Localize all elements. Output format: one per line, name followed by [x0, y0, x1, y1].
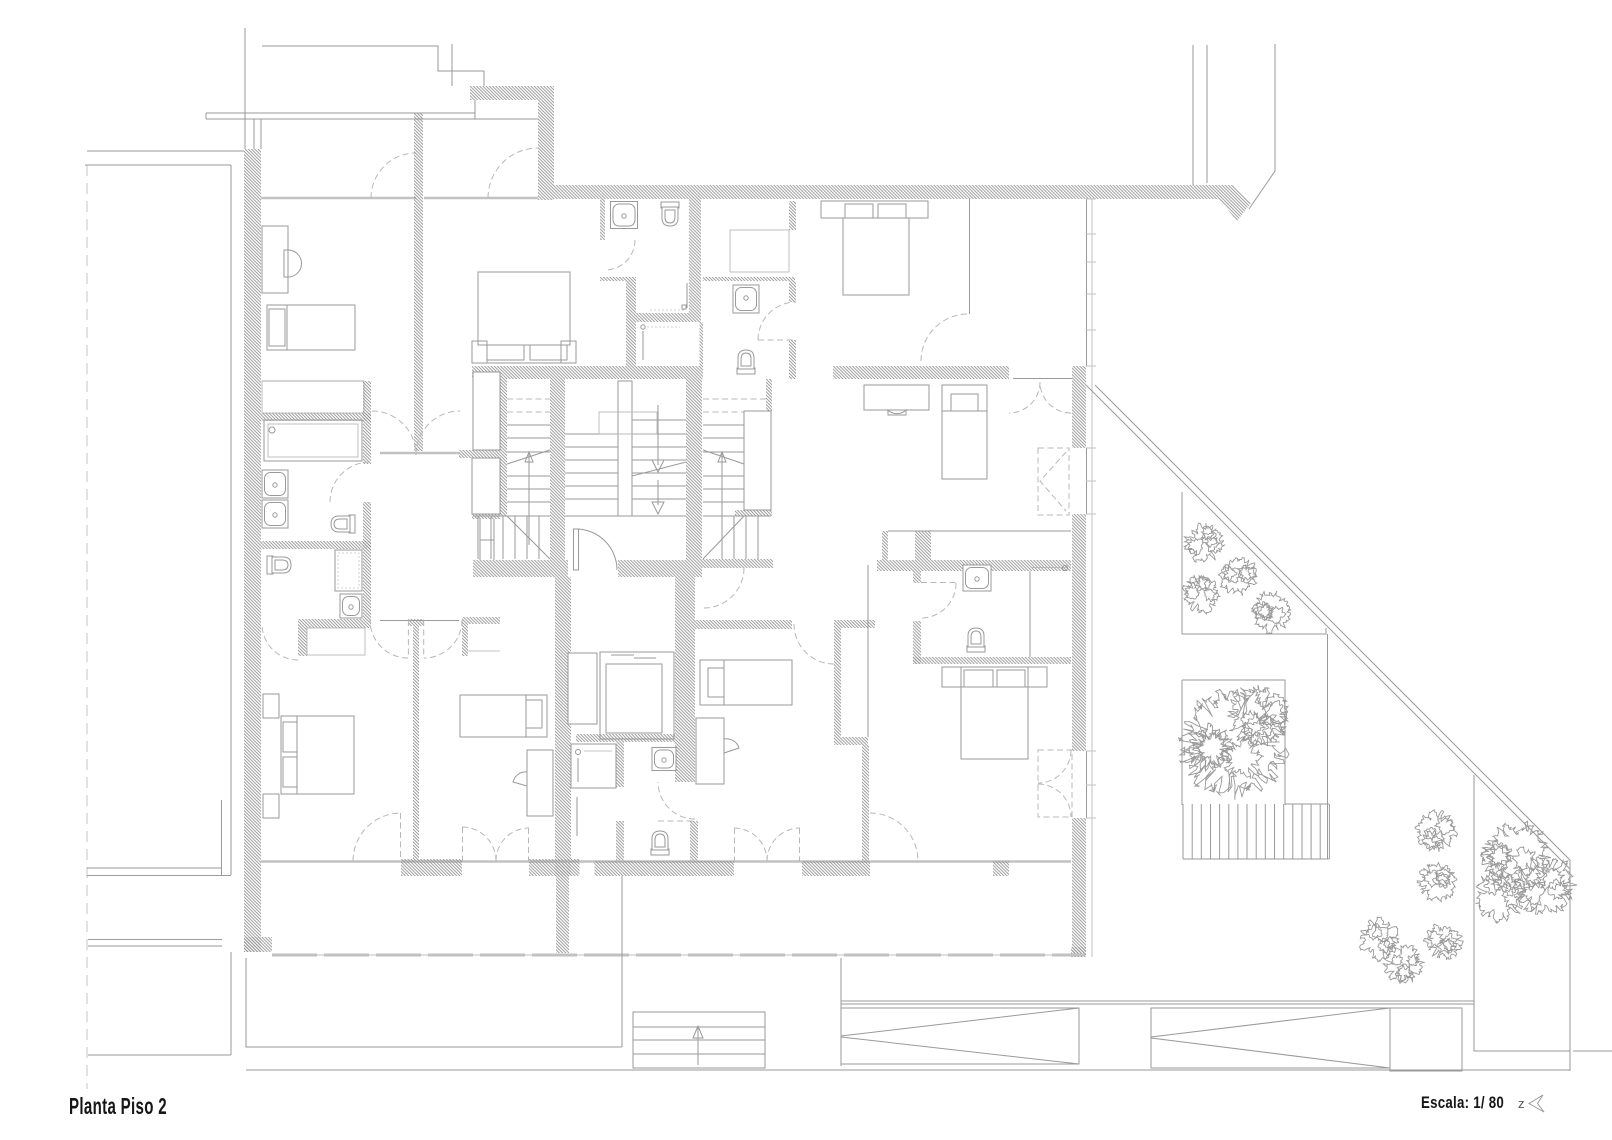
svg-text:Planta Piso 2: Planta Piso 2 — [69, 1093, 167, 1119]
svg-text:z: z — [1518, 1096, 1525, 1111]
svg-text:Escala: 1/ 80: Escala: 1/ 80 — [1421, 1094, 1504, 1112]
